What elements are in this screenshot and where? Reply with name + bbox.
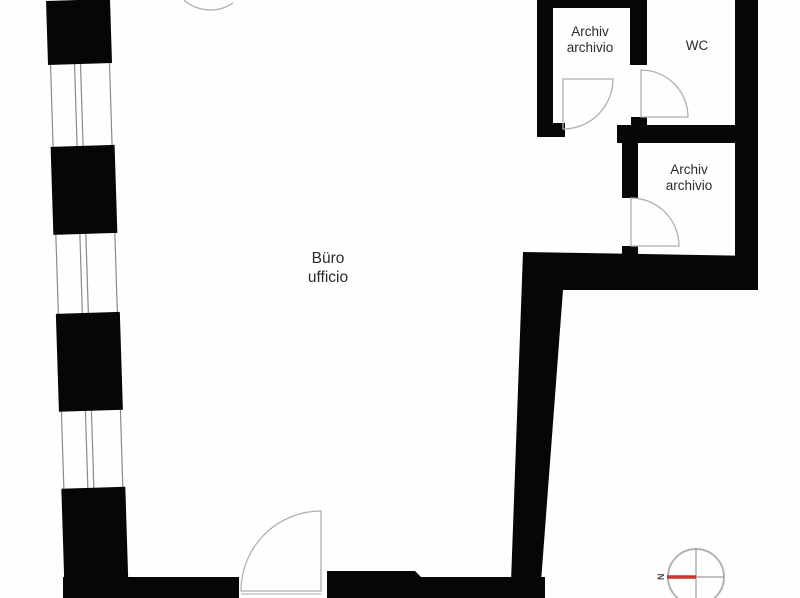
room-label-line: ufficio (308, 268, 348, 287)
door-swing-entrance (241, 511, 321, 591)
room-label-line: WC (686, 38, 709, 54)
door-swing-archive-upper (563, 79, 613, 129)
room-label-archive-mid: Archiv archivio (666, 162, 713, 194)
archive-left-wall (537, 0, 565, 137)
room-label-line: Archiv (666, 162, 713, 178)
wc-door-jamb (631, 117, 647, 125)
mid-archive-left-wall (622, 143, 638, 198)
archive-wc-divider-wall (630, 0, 647, 65)
door-swing-wc (641, 70, 688, 117)
room-label-archive-upper: Archiv archivio (567, 24, 614, 56)
compass-north-label: N (656, 574, 666, 581)
office-right-wall (511, 252, 758, 582)
room-label-buero: Büro ufficio (308, 249, 348, 287)
bottom-wall-left (63, 577, 239, 598)
door-swing-top-partial (184, 0, 233, 10)
archive-top-wall (537, 0, 630, 8)
wall-pier (56, 312, 123, 412)
room-label-wc: WC (686, 38, 709, 54)
room-label-line: Archiv (567, 24, 614, 40)
wall-pier (46, 0, 112, 65)
compass: N (656, 549, 724, 598)
window-glazing-line (74, 58, 88, 492)
wc-bottom-wall (617, 125, 758, 143)
room-label-line: archivio (666, 178, 713, 194)
wall-pier (51, 145, 118, 235)
window-glazing-line (80, 58, 94, 492)
left-exterior-window-wall (46, 0, 129, 598)
room-label-line: archivio (567, 40, 614, 56)
right-exterior-wall (735, 0, 758, 290)
door-swing-archive-mid (631, 198, 679, 246)
floor-plan-drawing: N (0, 0, 800, 598)
floor-plan-canvas: N Büro ufficio Archiv archivio WC Archiv… (0, 0, 800, 598)
room-label-line: Büro (308, 249, 348, 268)
